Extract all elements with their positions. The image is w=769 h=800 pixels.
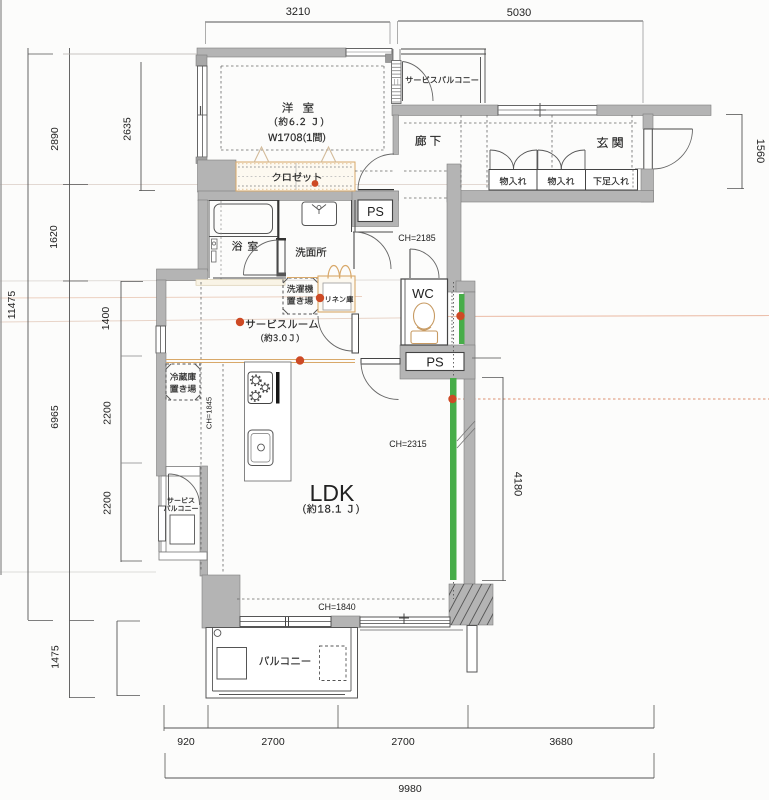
svg-text:5030: 5030 [507, 7, 531, 19]
svg-text:3680: 3680 [549, 736, 573, 748]
svg-text:2200: 2200 [102, 401, 114, 425]
svg-text:1560: 1560 [754, 139, 766, 163]
svg-text:2200: 2200 [102, 491, 114, 515]
svg-text:1475: 1475 [50, 645, 62, 669]
svg-text:CH=2185: CH=2185 [398, 233, 436, 243]
svg-text:1620: 1620 [48, 225, 60, 249]
svg-text:1400: 1400 [100, 307, 112, 331]
svg-text:LDK: LDK [310, 480, 355, 506]
svg-text:2700: 2700 [391, 736, 415, 748]
svg-text:4180: 4180 [512, 472, 524, 496]
svg-text:11475: 11475 [6, 291, 18, 320]
svg-text:9980: 9980 [398, 783, 422, 795]
svg-text:3210: 3210 [286, 6, 310, 18]
svg-text:2890: 2890 [49, 127, 61, 151]
svg-text:WC: WC [412, 286, 434, 301]
svg-text:920: 920 [177, 736, 195, 748]
svg-text:CH=1840: CH=1840 [318, 602, 356, 612]
svg-text:2700: 2700 [261, 736, 285, 748]
svg-text:6965: 6965 [49, 405, 61, 429]
svg-text:CH=1845: CH=1845 [205, 397, 214, 429]
svg-text:CH=2315: CH=2315 [389, 439, 427, 449]
svg-text:PS: PS [367, 205, 384, 219]
svg-text:2635: 2635 [122, 117, 134, 141]
svg-text:PS: PS [426, 355, 444, 370]
